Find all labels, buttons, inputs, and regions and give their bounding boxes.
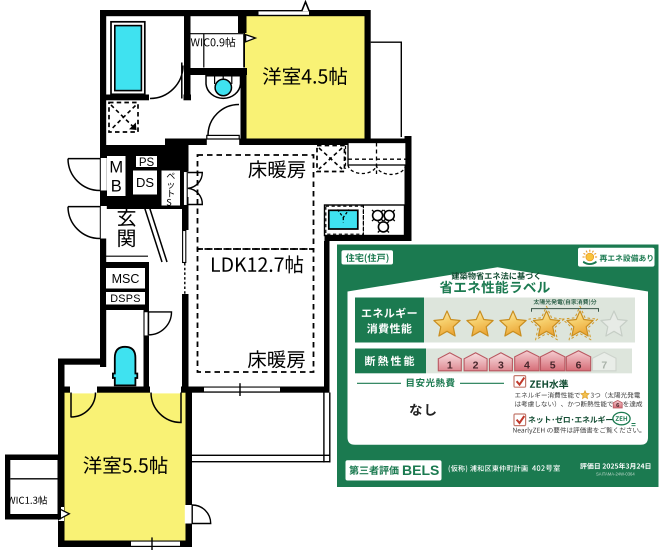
- svg-text:DS: DS: [136, 175, 154, 190]
- svg-text:1: 1: [447, 359, 453, 371]
- svg-text:2: 2: [473, 359, 479, 371]
- svg-text:6: 6: [576, 359, 582, 371]
- svg-text:4: 4: [524, 359, 530, 371]
- svg-text:M: M: [109, 159, 123, 177]
- svg-text:MSC: MSC: [112, 272, 140, 286]
- svg-text:B: B: [111, 178, 122, 196]
- svg-text:BELS: BELS: [402, 462, 439, 478]
- svg-text:3: 3: [498, 359, 504, 371]
- svg-text:7: 7: [601, 359, 607, 371]
- svg-text:5: 5: [550, 359, 556, 371]
- svg-text:SAITAMA-24W-0364: SAITAMA-24W-0364: [596, 472, 635, 477]
- svg-text:DSPS: DSPS: [110, 293, 141, 305]
- svg-text:PS: PS: [139, 157, 155, 169]
